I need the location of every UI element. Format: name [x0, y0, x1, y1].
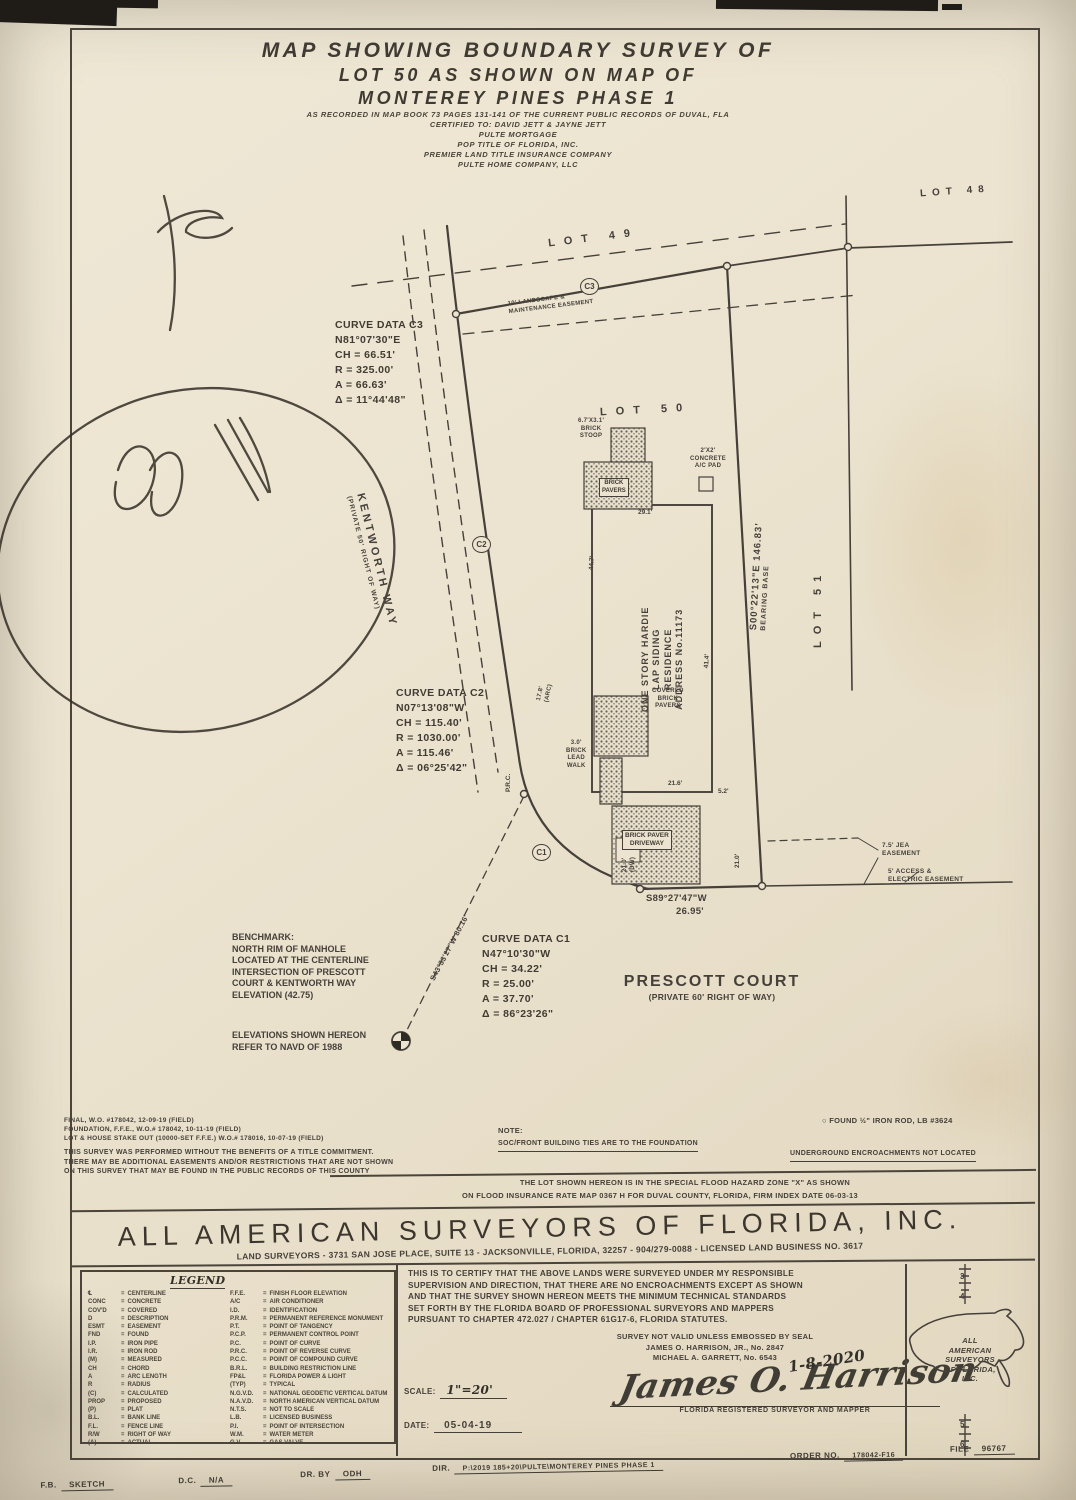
legend-meaning: FENCE LINE: [128, 1423, 164, 1431]
access-easement-label: 5' ACCESS &ELECTRIC EASEMENT: [888, 868, 964, 883]
feature-line: CONCRETE: [690, 456, 726, 464]
elevation-line: ELEVATIONS SHOWN HEREON: [232, 1030, 366, 1042]
brick-stoop-label: 6.7'X3.1'BRICKSTOOP: [578, 418, 604, 441]
legend-equals: =: [121, 1390, 125, 1398]
curve-data-line: A = 66.63': [335, 378, 423, 393]
legend-equals: =: [263, 1307, 267, 1315]
legend-entry: P.T. = POINT OF TANGENCY: [230, 1323, 390, 1331]
legend-equals: =: [121, 1414, 125, 1422]
legend-equals: =: [121, 1439, 125, 1447]
legend-meaning: RADIUS: [128, 1381, 151, 1389]
curve-data-line: R = 1030.00': [396, 731, 484, 746]
legend-meaning: CALCULATED: [128, 1390, 169, 1398]
legend-equals: =: [121, 1431, 125, 1439]
field-value: SKETCH: [61, 1479, 113, 1491]
curve-data-c3: CURVE DATA C3N81°07'30"ECH = 66.51'R = 3…: [335, 318, 423, 408]
legend-meaning: GAS VALVE: [270, 1439, 304, 1447]
divider: [396, 1264, 398, 1456]
legend-equals: =: [263, 1323, 267, 1331]
legend-equals: =: [121, 1365, 125, 1373]
legend-equals: =: [121, 1340, 125, 1348]
dc-field: D.C. N/A: [178, 1469, 232, 1488]
feature-line: A/C PAD: [690, 463, 726, 471]
certification-text: THIS IS TO CERTIFY THAT THE ABOVE LANDS …: [408, 1268, 873, 1326]
legend-equals: =: [263, 1406, 267, 1414]
benchmark-note: BENCHMARK:NORTH RIM OF MANHOLELOCATED AT…: [232, 932, 369, 1001]
field-label: D.C.: [178, 1476, 196, 1485]
legend-meaning: RIGHT OF WAY: [128, 1431, 171, 1439]
feature-line: BRICK: [652, 696, 684, 704]
legend-meaning: PLAT: [128, 1406, 143, 1414]
field-book-field: F.B. SKETCH: [40, 1473, 113, 1492]
legend-entry: I.P. = IRON PIPE: [88, 1340, 228, 1348]
legend-abbr: W.M.: [230, 1431, 260, 1439]
legend-equals: =: [121, 1331, 125, 1339]
dim-driveway-width: 21.0'(DW): [622, 857, 637, 872]
legend-meaning: DESCRIPTION: [128, 1315, 169, 1323]
legend-abbr: P.C.: [230, 1340, 260, 1348]
legend-entry: N.G.V.D. = NATIONAL GEODETIC VERTICAL DA…: [230, 1390, 390, 1398]
legend-equals: =: [263, 1348, 267, 1356]
legend-abbr: A/C: [230, 1298, 260, 1306]
legend-entry: I.D. = IDENTIFICATION: [230, 1307, 390, 1315]
legend-equals: =: [121, 1290, 125, 1298]
legend-abbr: F.F.E.: [230, 1290, 260, 1298]
legend-meaning: COVERED: [128, 1307, 158, 1315]
legend-equals: =: [121, 1315, 125, 1323]
legend-abbr: COV'D: [88, 1307, 118, 1315]
legend-equals: =: [263, 1431, 267, 1439]
field-label: F.B.: [40, 1480, 56, 1489]
drawn-by-field: DR. BY ODH: [300, 1463, 370, 1482]
legend-abbr: P.C.C.: [230, 1356, 260, 1364]
legend-abbr: (M): [88, 1356, 118, 1364]
legend-meaning: POINT OF CURVE: [270, 1340, 321, 1348]
legend-entry: B.R.L. = BUILDING RESTRICTION LINE: [230, 1365, 390, 1373]
legend-entry: L.B. = LICENSED BUSINESS: [230, 1414, 390, 1422]
note-line: THIS SURVEY WAS PERFORMED WITHOUT THE BE…: [64, 1148, 393, 1158]
legend-meaning: ACTUAL: [128, 1439, 153, 1447]
dim-bottom: 21.6': [668, 780, 682, 788]
certification-line: SET FORTH BY THE FLORIDA BOARD OF PROFES…: [408, 1303, 873, 1315]
field-value: 178042-F16: [844, 1452, 903, 1462]
legend-meaning: LICENSED BUSINESS: [270, 1414, 333, 1422]
scale-value: 1"=20': [440, 1383, 507, 1399]
legend-abbr: N.G.V.D.: [230, 1390, 260, 1398]
legend-abbr: I.R.: [88, 1348, 118, 1356]
legend-equals: =: [263, 1381, 267, 1389]
legend-abbr: (C): [88, 1390, 118, 1398]
field-note-line: FINAL, W.O. #178042, 12-09-19 (FIELD): [64, 1116, 324, 1125]
field-label: DIR.: [432, 1464, 450, 1473]
feature-line: PAVERS: [652, 703, 684, 711]
dim-left: 44.7': [588, 556, 596, 571]
benchmark-line: BENCHMARK:: [232, 932, 369, 944]
logo-text-line: OF FLORIDA,: [922, 1365, 1018, 1375]
legend-meaning: ARC LENGTH: [128, 1373, 167, 1381]
curve-tag-c1: C1: [532, 844, 551, 861]
legend-abbr: I.P.: [88, 1340, 118, 1348]
legend-equals: =: [121, 1323, 125, 1331]
logo-text-line: AMERICAN: [922, 1346, 1018, 1356]
legend-box: LEGEND ℄ = CENTERLINE CONC = CONCRETE CO…: [80, 1270, 396, 1444]
dim-corner: 5.2': [718, 788, 729, 796]
feature-line: 2'X2': [690, 448, 726, 456]
benchmark-line: ELEVATION (42.75): [232, 990, 369, 1002]
curve-data-line: A = 115.46': [396, 746, 484, 761]
legend-abbr: ESMT: [88, 1323, 118, 1331]
legend-equals: =: [121, 1406, 125, 1414]
feature-line: PAVERS: [602, 488, 626, 496]
legend-entry: (A) = ACTUAL: [88, 1439, 228, 1447]
legend-abbr: D: [88, 1315, 118, 1323]
feature-line: BRICK: [566, 748, 587, 756]
legend-abbr: (TYP): [230, 1381, 260, 1389]
curve-data-line: N81°07'30"E: [335, 333, 423, 348]
legend-entry: A = ARC LENGTH: [88, 1373, 228, 1381]
curve-tag-c2: C2: [472, 536, 491, 553]
flood-note-line2: ON FLOOD INSURANCE RATE MAP 0367 H FOR D…: [300, 1191, 1020, 1200]
underground-note: UNDERGROUND ENCROACHMENTS NOT LOCATED: [790, 1150, 976, 1162]
legend-entry: FP&L = FLORIDA POWER & LIGHT: [230, 1373, 390, 1381]
legend-entry: CONC = CONCRETE: [88, 1298, 228, 1306]
legend-abbr: CH: [88, 1365, 118, 1373]
legend-entry: N.T.S. = NOT TO SCALE: [230, 1406, 390, 1414]
certification-line: AND THAT THE SURVEY SHOWN HEREON MEETS T…: [408, 1291, 873, 1303]
legend-equals: =: [121, 1348, 125, 1356]
legend-equals: =: [121, 1307, 125, 1315]
brick-pavers-label: BRICKPAVERS: [599, 478, 629, 497]
jea-easement-label: 7.5' JEAEASEMENT: [882, 842, 921, 857]
title-commitment-note: THIS SURVEY WAS PERFORMED WITHOUT THE BE…: [64, 1148, 393, 1177]
legend-equals: =: [263, 1390, 267, 1398]
legend-equals: =: [263, 1373, 267, 1381]
dim-dw2: 21.0': [734, 854, 742, 868]
seal-line: SURVEY NOT VALID UNLESS EMBOSSED BY SEAL: [560, 1332, 870, 1343]
logo-text-line: SURVEYORS: [922, 1355, 1018, 1365]
iron-rod-icon: ○: [822, 1116, 827, 1125]
legend-meaning: POINT OF COMPOUND CURVE: [270, 1356, 358, 1364]
legend-entry: N.A.V.D. = NORTH AMERICAN VERTICAL DATUM: [230, 1398, 390, 1406]
note-line: THERE MAY BE ADDITIONAL EASEMENTS AND/OR…: [64, 1158, 393, 1168]
field-value: N/A: [201, 1475, 232, 1487]
legend-abbr: PROP: [88, 1398, 118, 1406]
feature-line: BRICK: [602, 480, 626, 488]
legend-entry: D = DESCRIPTION: [88, 1315, 228, 1323]
legend-abbr: B.L.: [88, 1414, 118, 1422]
legend-meaning: NATIONAL GEODETIC VERTICAL DATUM: [270, 1390, 388, 1398]
signature-line: FLORIDA REGISTERED SURVEYOR AND MAPPER: [610, 1406, 940, 1416]
easement-line: 7.5' JEA: [882, 842, 921, 850]
feature-line: WALK: [566, 763, 587, 771]
lot-51-label: LOT 51: [812, 569, 826, 648]
easement-line: ELECTRIC EASEMENT: [888, 876, 964, 884]
legend-meaning: FLORIDA POWER & LIGHT: [270, 1373, 346, 1381]
legend-meaning: POINT OF REVERSE CURVE: [270, 1348, 351, 1356]
legend-abbr: R: [88, 1381, 118, 1389]
legend-entry: B.L. = BANK LINE: [88, 1414, 228, 1422]
legend-entry: (P) = PLAT: [88, 1406, 228, 1414]
legend-meaning: NOT TO SCALE: [270, 1406, 315, 1414]
curve-data-line: Δ = 06°25'42": [396, 761, 484, 776]
feature-line: STOOP: [578, 433, 604, 441]
legend-abbr: FND: [88, 1331, 118, 1339]
found-rod-text: FOUND ½" IRON ROD, LB #3624: [829, 1116, 952, 1125]
legend-equals: =: [263, 1398, 267, 1406]
feature-line: 6.7'X3.1': [578, 418, 604, 426]
order-no-field: ORDER NO. 178042-F16: [790, 1444, 903, 1464]
field-note-line: FOUNDATION, F.F.E., W.O.# 178042, 10-11-…: [64, 1125, 324, 1134]
legend-equals: =: [121, 1398, 125, 1406]
legend-equals: =: [263, 1340, 267, 1348]
ac-pad-label: 2'X2'CONCRETEA/C PAD: [690, 448, 726, 471]
legend-entry: P.R.C. = POINT OF REVERSE CURVE: [230, 1348, 390, 1356]
benchmark-line: COURT & KENTWORTH WAY: [232, 978, 369, 990]
scale-label: SCALE:: [404, 1387, 436, 1396]
curve-data-line: Δ = 86°23'26": [482, 1007, 570, 1022]
field-label: ORDER NO.: [790, 1451, 840, 1461]
logo-text-line: INC.: [922, 1374, 1018, 1384]
legend-meaning: IRON ROD: [128, 1348, 158, 1356]
date-field: DATE: 05-04-19: [404, 1414, 522, 1434]
legend-entry: FND = FOUND: [88, 1331, 228, 1339]
legend-meaning: CHORD: [128, 1365, 150, 1373]
field-value: 96767: [974, 1444, 1015, 1456]
curve-data-c1: CURVE DATA C1N47°10'30"WCH = 34.22'R = 2…: [482, 932, 570, 1022]
legend-meaning: CENTERLINE: [128, 1290, 166, 1298]
legend-abbr: P.T.: [230, 1323, 260, 1331]
legend-abbr: (A): [88, 1439, 118, 1447]
feature-line: LEAD: [566, 755, 587, 763]
legend-left-column: ℄ = CENTERLINE CONC = CONCRETE COV'D = C…: [88, 1290, 228, 1448]
legend-entry: PROP = PROPOSED: [88, 1398, 228, 1406]
legend-entry: P.C.P. = PERMANENT CONTROL POINT: [230, 1331, 390, 1339]
legend-equals: =: [263, 1439, 267, 1447]
legend-meaning: FOUND: [128, 1331, 149, 1339]
file-field: FILE 96767: [950, 1438, 1015, 1457]
legend-entry: P.I. = POINT OF INTERSECTION: [230, 1423, 390, 1431]
legend-equals: =: [263, 1356, 267, 1364]
legend-entry: F.F.E. = FINISH FLOOR ELEVATION: [230, 1290, 390, 1298]
driveway-label: BRICK PAVERDRIVEWAY: [622, 830, 672, 850]
legend-abbr: ℄: [88, 1290, 118, 1298]
curve-data-c2: CURVE DATA C2N07°13'08"WCH = 115.40'R = …: [396, 686, 484, 776]
found-rod-note: ○ FOUND ½" IRON ROD, LB #3624: [822, 1116, 953, 1125]
legend-entry: P.C. = POINT OF CURVE: [230, 1340, 390, 1348]
legend-meaning: NORTH AMERICAN VERTICAL DATUM: [270, 1398, 380, 1406]
legend-entry: ESMT = EASEMENT: [88, 1323, 228, 1331]
curve-data-line: R = 25.00': [482, 977, 570, 992]
legend-equals: =: [263, 1365, 267, 1373]
legend-abbr: P.R.M.: [230, 1315, 260, 1323]
legend-equals: =: [263, 1331, 267, 1339]
field-value: ODH: [335, 1469, 370, 1481]
legend-equals: =: [121, 1373, 125, 1381]
street-name: PRESCOTT COURT: [612, 972, 812, 992]
legend-equals: =: [263, 1298, 267, 1306]
date-label: DATE:: [404, 1421, 429, 1430]
certification-line: THIS IS TO CERTIFY THAT THE ABOVE LANDS …: [408, 1268, 873, 1280]
legend-equals: =: [121, 1381, 125, 1389]
curve-data-line: CURVE DATA C2: [396, 686, 484, 701]
benchmark-line: INTERSECTION OF PRESCOTT: [232, 967, 369, 979]
legend-entry: A/C = AIR CONDITIONER: [230, 1298, 390, 1306]
logo-text-line: ALL: [922, 1336, 1018, 1346]
easement-line: EASEMENT: [882, 850, 921, 858]
curve-data-line: A = 37.70': [482, 992, 570, 1007]
feature-line: BRICK PAVER: [625, 832, 669, 840]
legend-meaning: TYPICAL: [270, 1381, 296, 1389]
soc-note: SOC/FRONT BUILDING TIES ARE TO THE FOUND…: [498, 1140, 698, 1152]
legend-abbr: P.I.: [230, 1423, 260, 1431]
legend-entry: (C) = CALCULATED: [88, 1390, 228, 1398]
legend-entry: I.R. = IRON ROD: [88, 1348, 228, 1356]
legend-abbr: N.A.V.D.: [230, 1398, 260, 1406]
dim-line: (DW): [630, 857, 638, 872]
legend-entry: COV'D = COVERED: [88, 1307, 228, 1315]
legend-meaning: POINT OF INTERSECTION: [270, 1423, 345, 1431]
curve-data-line: CURVE DATA C1: [482, 932, 570, 947]
feature-line: 3.0': [566, 740, 587, 748]
legend-equals: =: [263, 1315, 267, 1323]
curve-data-line: R = 325.00': [335, 363, 423, 378]
legend-abbr: B.R.L.: [230, 1365, 260, 1373]
feature-line: COVERED: [652, 688, 684, 696]
feature-line: BRICK: [578, 426, 604, 434]
house-line: ONE STORY HARDIE: [640, 607, 651, 712]
south-bearing-label: S89°27'47"W: [646, 893, 707, 905]
ruler-number: 3: [960, 1272, 965, 1282]
easement-line: 5' ACCESS &: [888, 868, 964, 876]
note-label: NOTE:: [498, 1126, 523, 1135]
legend-right-column: F.F.E. = FINISH FLOOR ELEVATION A/C = AI…: [230, 1290, 390, 1448]
legend-meaning: CONCRETE: [128, 1298, 162, 1306]
legend-meaning: AIR CONDITIONER: [270, 1298, 324, 1306]
legend-entry: P.R.M. = PERMANENT REFERENCE MONUMENT: [230, 1315, 390, 1323]
dim-right: 41.4': [703, 654, 711, 669]
legend-meaning: BUILDING RESTRICTION LINE: [270, 1365, 357, 1373]
street-row: (PRIVATE 60' RIGHT OF WAY): [612, 992, 812, 1003]
benchmark-line: LOCATED AT THE CENTERLINE: [232, 955, 369, 967]
legend-entry: P.C.C. = POINT OF COMPOUND CURVE: [230, 1356, 390, 1364]
legend-meaning: POINT OF TANGENCY: [270, 1323, 333, 1331]
dim-top: 29.1': [638, 509, 652, 517]
curve-data-line: Δ = 11°44'48": [335, 393, 423, 408]
scale-field: SCALE: 1"=20': [404, 1380, 507, 1400]
legend-abbr: P.R.C.: [230, 1348, 260, 1356]
legend-abbr: F.L.: [88, 1423, 118, 1431]
curve-data-line: N47°10'30"W: [482, 947, 570, 962]
certification-line: SUPERVISION AND DIRECTION, THAT THERE AR…: [408, 1280, 873, 1292]
legend-abbr: R/W: [88, 1431, 118, 1439]
legend-meaning: PERMANENT CONTROL POINT: [270, 1331, 359, 1339]
legend-entry: (M) = MEASURED: [88, 1356, 228, 1364]
legend-equals: =: [263, 1290, 267, 1298]
south-distance-label: 26.95': [676, 906, 704, 918]
lead-walk-label: 3.0'BRICKLEADWALK: [566, 740, 587, 770]
certification-line: PURSUANT TO CHAPTER 472.027 / CHAPTER 61…: [408, 1314, 873, 1326]
legend-abbr: P.C.P.: [230, 1331, 260, 1339]
field-notes: FINAL, W.O. #178042, 12-09-19 (FIELD)FOU…: [64, 1116, 324, 1143]
legend-abbr: CONC: [88, 1298, 118, 1306]
legend-equals: =: [121, 1298, 125, 1306]
dim-line: 21.0': [622, 857, 630, 872]
elevation-line: REFER TO NAVD OF 1988: [232, 1042, 366, 1054]
legend-entry: R/W = RIGHT OF WAY: [88, 1431, 228, 1439]
legend-title: LEGEND: [170, 1274, 225, 1289]
prc-label: P.R.C.: [505, 774, 513, 792]
elevation-note: ELEVATIONS SHOWN HEREONREFER TO NAVD OF …: [232, 1030, 366, 1053]
date-value: 05-04-19: [434, 1420, 522, 1433]
field-note-line: LOT & HOUSE STAKE OUT (10000-SET F.F.E.)…: [64, 1134, 324, 1143]
legend-equals: =: [121, 1423, 125, 1431]
field-label: FILE: [950, 1444, 969, 1453]
legend-abbr: FP&L: [230, 1373, 260, 1381]
legend-meaning: IRON PIPE: [128, 1340, 158, 1348]
benchmark-line: NORTH RIM OF MANHOLE: [232, 944, 369, 956]
legend-abbr: N.T.S.: [230, 1406, 260, 1414]
feature-line: DRIVEWAY: [625, 840, 669, 848]
legend-entry: (TYP) = TYPICAL: [230, 1381, 390, 1389]
legend-entry: W.M. = WATER METER: [230, 1431, 390, 1439]
legend-entry: F.L. = FENCE LINE: [88, 1423, 228, 1431]
legend-entry: R = RADIUS: [88, 1381, 228, 1389]
covered-pavers-label: COVEREDBRICKPAVERS: [652, 688, 684, 711]
ruler-number: 4: [960, 1292, 965, 1302]
legend-equals: =: [263, 1423, 267, 1431]
prescott-court-label: PRESCOTT COURT (PRIVATE 60' RIGHT OF WAY…: [612, 972, 812, 1003]
scanned-survey-photo: MAP SHOWING BOUNDARY SURVEY OF LOT 50 AS…: [0, 0, 1076, 1500]
logo-text: ALLAMERICANSURVEYORSOF FLORIDA,INC.: [922, 1336, 1018, 1384]
legend-meaning: IDENTIFICATION: [270, 1307, 318, 1315]
curve-data-line: CH = 34.22': [482, 962, 570, 977]
legend-abbr: (P): [88, 1406, 118, 1414]
legend-abbr: A: [88, 1373, 118, 1381]
legend-meaning: PERMANENT REFERENCE MONUMENT: [270, 1315, 384, 1323]
field-label: DR. BY: [300, 1470, 330, 1480]
legend-meaning: FINISH FLOOR ELEVATION: [270, 1290, 347, 1298]
legend-equals: =: [121, 1356, 125, 1364]
legend-meaning: BANK LINE: [128, 1414, 161, 1422]
legend-meaning: EASEMENT: [128, 1323, 161, 1331]
curve-data-line: CH = 66.51': [335, 348, 423, 363]
legend-meaning: PROPOSED: [128, 1398, 162, 1406]
curve-data-line: CURVE DATA C3: [335, 318, 423, 333]
legend-abbr: I.D.: [230, 1307, 260, 1315]
ruler-number: 5: [960, 1420, 965, 1430]
legend-abbr: L.B.: [230, 1414, 260, 1422]
legend-entry: CH = CHORD: [88, 1365, 228, 1373]
curve-data-line: N07°13'08"W: [396, 701, 484, 716]
legend-abbr: G.V.: [230, 1439, 260, 1447]
legend-meaning: MEASURED: [128, 1356, 162, 1364]
curve-data-line: CH = 115.40': [396, 716, 484, 731]
legend-entry: ℄ = CENTERLINE: [88, 1290, 228, 1298]
signature-caption: FLORIDA REGISTERED SURVEYOR AND MAPPER: [610, 1407, 940, 1416]
flood-note-line1: THE LOT SHOWN HEREON IS IN THE SPECIAL F…: [360, 1178, 1010, 1187]
legend-meaning: WATER METER: [270, 1431, 314, 1439]
legend-entry: G.V. = GAS VALVE: [230, 1439, 390, 1447]
legend-equals: =: [263, 1414, 267, 1422]
